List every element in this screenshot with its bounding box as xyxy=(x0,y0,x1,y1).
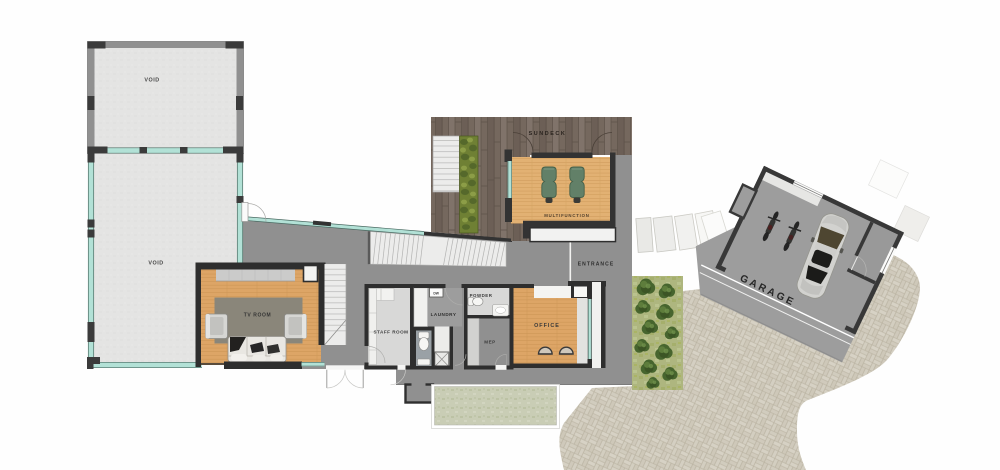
svg-text:SUNDECK: SUNDECK xyxy=(529,131,567,137)
svg-text:STAFF ROOM: STAFF ROOM xyxy=(373,330,408,335)
svg-text:VOID: VOID xyxy=(148,261,163,267)
svg-text:MULTIFUNCTION: MULTIFUNCTION xyxy=(544,213,589,218)
svg-text:MEP: MEP xyxy=(484,339,495,344)
svg-text:OFFICE: OFFICE xyxy=(534,323,560,329)
svg-text:LAUNDRY: LAUNDRY xyxy=(431,312,457,317)
svg-text:TV ROOM: TV ROOM xyxy=(244,313,272,319)
svg-text:ENTRANCE: ENTRANCE xyxy=(578,261,615,267)
svg-text:DW: DW xyxy=(433,292,439,296)
svg-text:VOID: VOID xyxy=(144,78,159,84)
